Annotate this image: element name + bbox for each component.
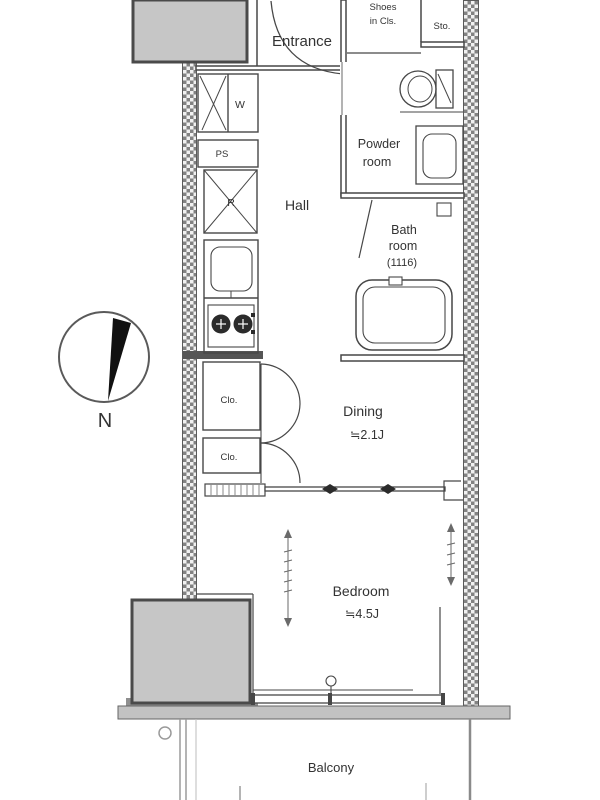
stove-fixture <box>208 305 255 347</box>
kitchen-unit <box>204 240 258 353</box>
dimension-annotation-right <box>447 523 455 586</box>
bedroom-label: Bedroom <box>333 583 390 599</box>
toilet-fixture <box>400 70 463 112</box>
hall-label: Hall <box>285 197 309 213</box>
bath-room-size: (1116) <box>387 257 417 269</box>
bath-room-label-line1: Bath <box>391 223 417 237</box>
refrigerator-label: R <box>227 197 235 209</box>
balcony-label: Balcony <box>308 760 355 775</box>
closet-lower <box>203 438 300 483</box>
washbasin-fixture <box>416 126 463 184</box>
sliding-partition <box>265 481 463 500</box>
powder-room-label-line2: room <box>363 155 391 169</box>
floor-plan-drawing: N Entrance Shoes in Cls. Sto. W PS R Hal… <box>0 0 600 800</box>
closet-upper <box>203 362 300 443</box>
shoes-closet-label-line2: in Cls. <box>370 16 396 27</box>
bedroom-size: ≒4.5J <box>345 607 379 621</box>
bath-room-label-line2: room <box>389 239 417 253</box>
floor-plan-canvas: N Entrance Shoes in Cls. Sto. W PS R Hal… <box>0 0 600 800</box>
compass-north-label: N <box>98 410 112 432</box>
entrance-label: Entrance <box>272 33 332 50</box>
shoes-closet-label-line1: Shoes <box>370 2 397 13</box>
closet-lower-label: Clo. <box>221 452 238 463</box>
dining-label: Dining <box>343 403 383 419</box>
closet-upper-label: Clo. <box>221 395 238 406</box>
washer-label: W <box>235 99 245 111</box>
kitchen-sink-fixture <box>211 247 252 298</box>
balcony-slab <box>118 706 510 800</box>
pipe-space-label: PS <box>216 149 229 160</box>
washer-space <box>198 74 258 132</box>
vent-strip <box>205 484 265 496</box>
balcony-window <box>251 676 445 705</box>
powder-room-door <box>340 62 347 115</box>
powder-room-label-line1: Powder <box>358 137 400 151</box>
bathtub-fixture <box>356 277 452 350</box>
storage-label: Sto. <box>434 21 451 32</box>
dining-size: ≒2.1J <box>350 428 384 442</box>
compass-icon: N <box>59 312 149 432</box>
dimension-annotation-left <box>284 529 292 627</box>
interior-walls <box>183 0 464 697</box>
